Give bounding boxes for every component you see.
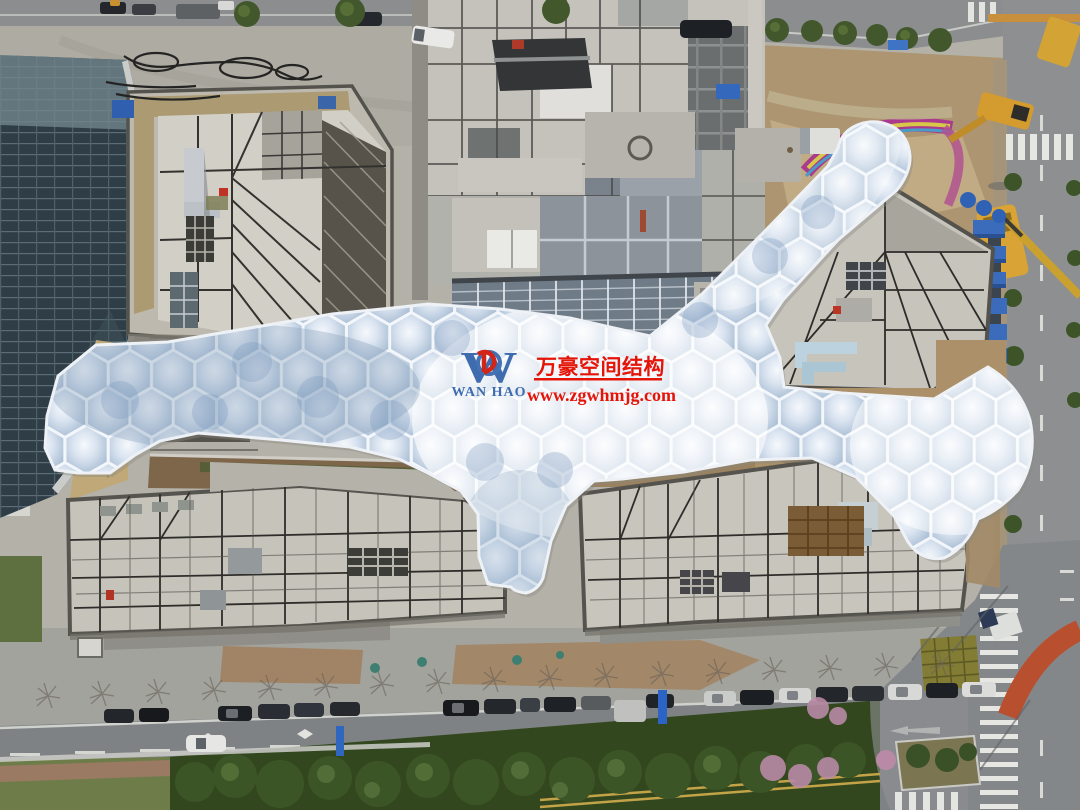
- svg-text:万豪空间结构: 万豪空间结构: [535, 355, 665, 379]
- svg-text:WAN HAO: WAN HAO: [451, 385, 526, 400]
- svg-text:www.zgwhmjg.com: www.zgwhmjg.com: [527, 385, 676, 405]
